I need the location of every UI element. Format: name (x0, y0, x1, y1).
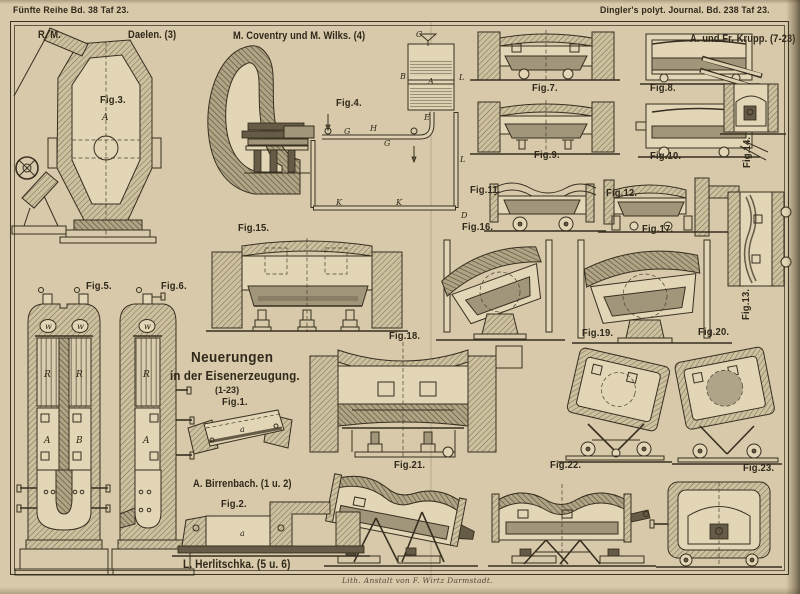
svg-text:E: E (423, 113, 430, 122)
page-edge-top (0, 0, 800, 4)
fig20-label: Fig.20. (698, 326, 729, 338)
fig4-drawing: C B A L E G H G K K L D (208, 30, 468, 220)
svg-text:w: w (77, 322, 84, 331)
fig9-drawing (470, 100, 620, 155)
svg-text:G: G (344, 127, 351, 136)
fig20-drawing (672, 346, 782, 464)
fig23-label: Fig.23. (743, 462, 774, 474)
header-left: Fünfte Reihe Bd. 38 Taf 23. (13, 5, 129, 16)
svg-text:A: A (142, 436, 150, 446)
svg-text:L: L (458, 73, 464, 82)
fig18-drawing (310, 342, 522, 458)
fig6-drawing: w R A (108, 288, 194, 576)
attribution-daelen: Daelen. (3) (128, 29, 176, 41)
svg-text:D: D (460, 211, 468, 220)
fig13-drawing (728, 192, 791, 286)
fig17-label: Fig.17. (642, 223, 673, 235)
fig8-label: Fig.8. (650, 82, 676, 94)
svg-text:K: K (395, 198, 403, 207)
svg-text:R: R (43, 370, 51, 380)
fig4-label: Fig.4. (336, 97, 362, 109)
svg-text:A: A (43, 436, 51, 446)
plate-title-line1: Neuerungen (191, 349, 273, 366)
fig3-label: Fig.3. (100, 94, 126, 106)
fig12-label: Fig.12. (606, 187, 637, 199)
fig22-label: Fig.22. (550, 459, 581, 471)
lithographer-imprint: Lith. Anstalt von F. Wirtz Darmstadt. (342, 576, 493, 585)
header-right: Dingler's polyt. Journal. Bd. 238 Taf 23… (600, 5, 770, 16)
fig19-drawing (558, 347, 672, 462)
svg-text:w: w (45, 322, 52, 331)
fig23-drawing (650, 482, 782, 567)
svg-text:C: C (416, 30, 422, 39)
attribution-rm: R. M. (38, 29, 61, 41)
page-edge-bottom (0, 587, 800, 594)
fig11-label: Fig.11. (470, 184, 501, 196)
svg-text:B: B (75, 436, 83, 446)
fig9-label: Fig.9. (534, 149, 560, 161)
fig5-drawing: w w R R A B (15, 288, 113, 576)
svg-text:B: B (399, 72, 406, 81)
fig2-label: Fig.2. (221, 498, 247, 510)
svg-text:R: R (75, 370, 83, 380)
fig7-label: Fig.7. (532, 82, 558, 94)
engraving-plate: A C (0, 0, 800, 594)
plate-title-range: (1-23) (215, 385, 239, 396)
attribution-birrenbach: A. Birrenbach. (1 u. 2) (193, 478, 292, 490)
svg-text:R: R (142, 370, 150, 380)
fig5-label: Fig.5. (86, 280, 112, 292)
fig1-label: Fig.1. (222, 396, 248, 408)
fig21-label: Fig.21. (394, 459, 425, 471)
attribution-herlitschka: L. Herlitschka. (5 u. 6) (183, 557, 290, 571)
svg-text:L: L (459, 155, 465, 164)
fig16-label: Fig.16. (462, 221, 493, 233)
page-edge-right (786, 0, 800, 594)
fig3-drawing: A (12, 28, 161, 243)
svg-text:A: A (101, 113, 109, 123)
fig16-drawing (436, 237, 565, 340)
fig10-label: Fig.10. (650, 150, 681, 162)
plate-figures: A C (0, 0, 800, 594)
svg-text:K: K (335, 198, 343, 207)
attribution-krupp: A. und Fr. Krupp. (7-23) (690, 33, 795, 45)
fig11-drawing (484, 183, 606, 231)
fig19-label: Fig.19. (582, 327, 613, 339)
fig6-label: Fig.6. (161, 280, 187, 292)
fig7-drawing (470, 30, 620, 82)
fig14-label: Fig.14. (741, 137, 753, 168)
attribution-coventry-wilks: M. Coventry und M. Wilks. (4) (233, 30, 365, 42)
plate-title-line2: in der Eisenerzeugung. (170, 368, 300, 383)
svg-text:w: w (144, 322, 151, 331)
fig1-drawing: a (188, 410, 292, 454)
fig13-label: Fig.13. (740, 289, 752, 320)
fig15-drawing (206, 238, 408, 332)
svg-text:H: H (369, 124, 378, 133)
fig15-label: Fig.15. (238, 222, 269, 234)
svg-text:G: G (384, 139, 391, 148)
svg-text:a: a (240, 529, 245, 538)
fig18-label: Fig.18. (389, 330, 420, 342)
fig22-drawing (488, 484, 656, 566)
svg-text:a: a (240, 425, 245, 434)
svg-text:A: A (427, 77, 434, 86)
